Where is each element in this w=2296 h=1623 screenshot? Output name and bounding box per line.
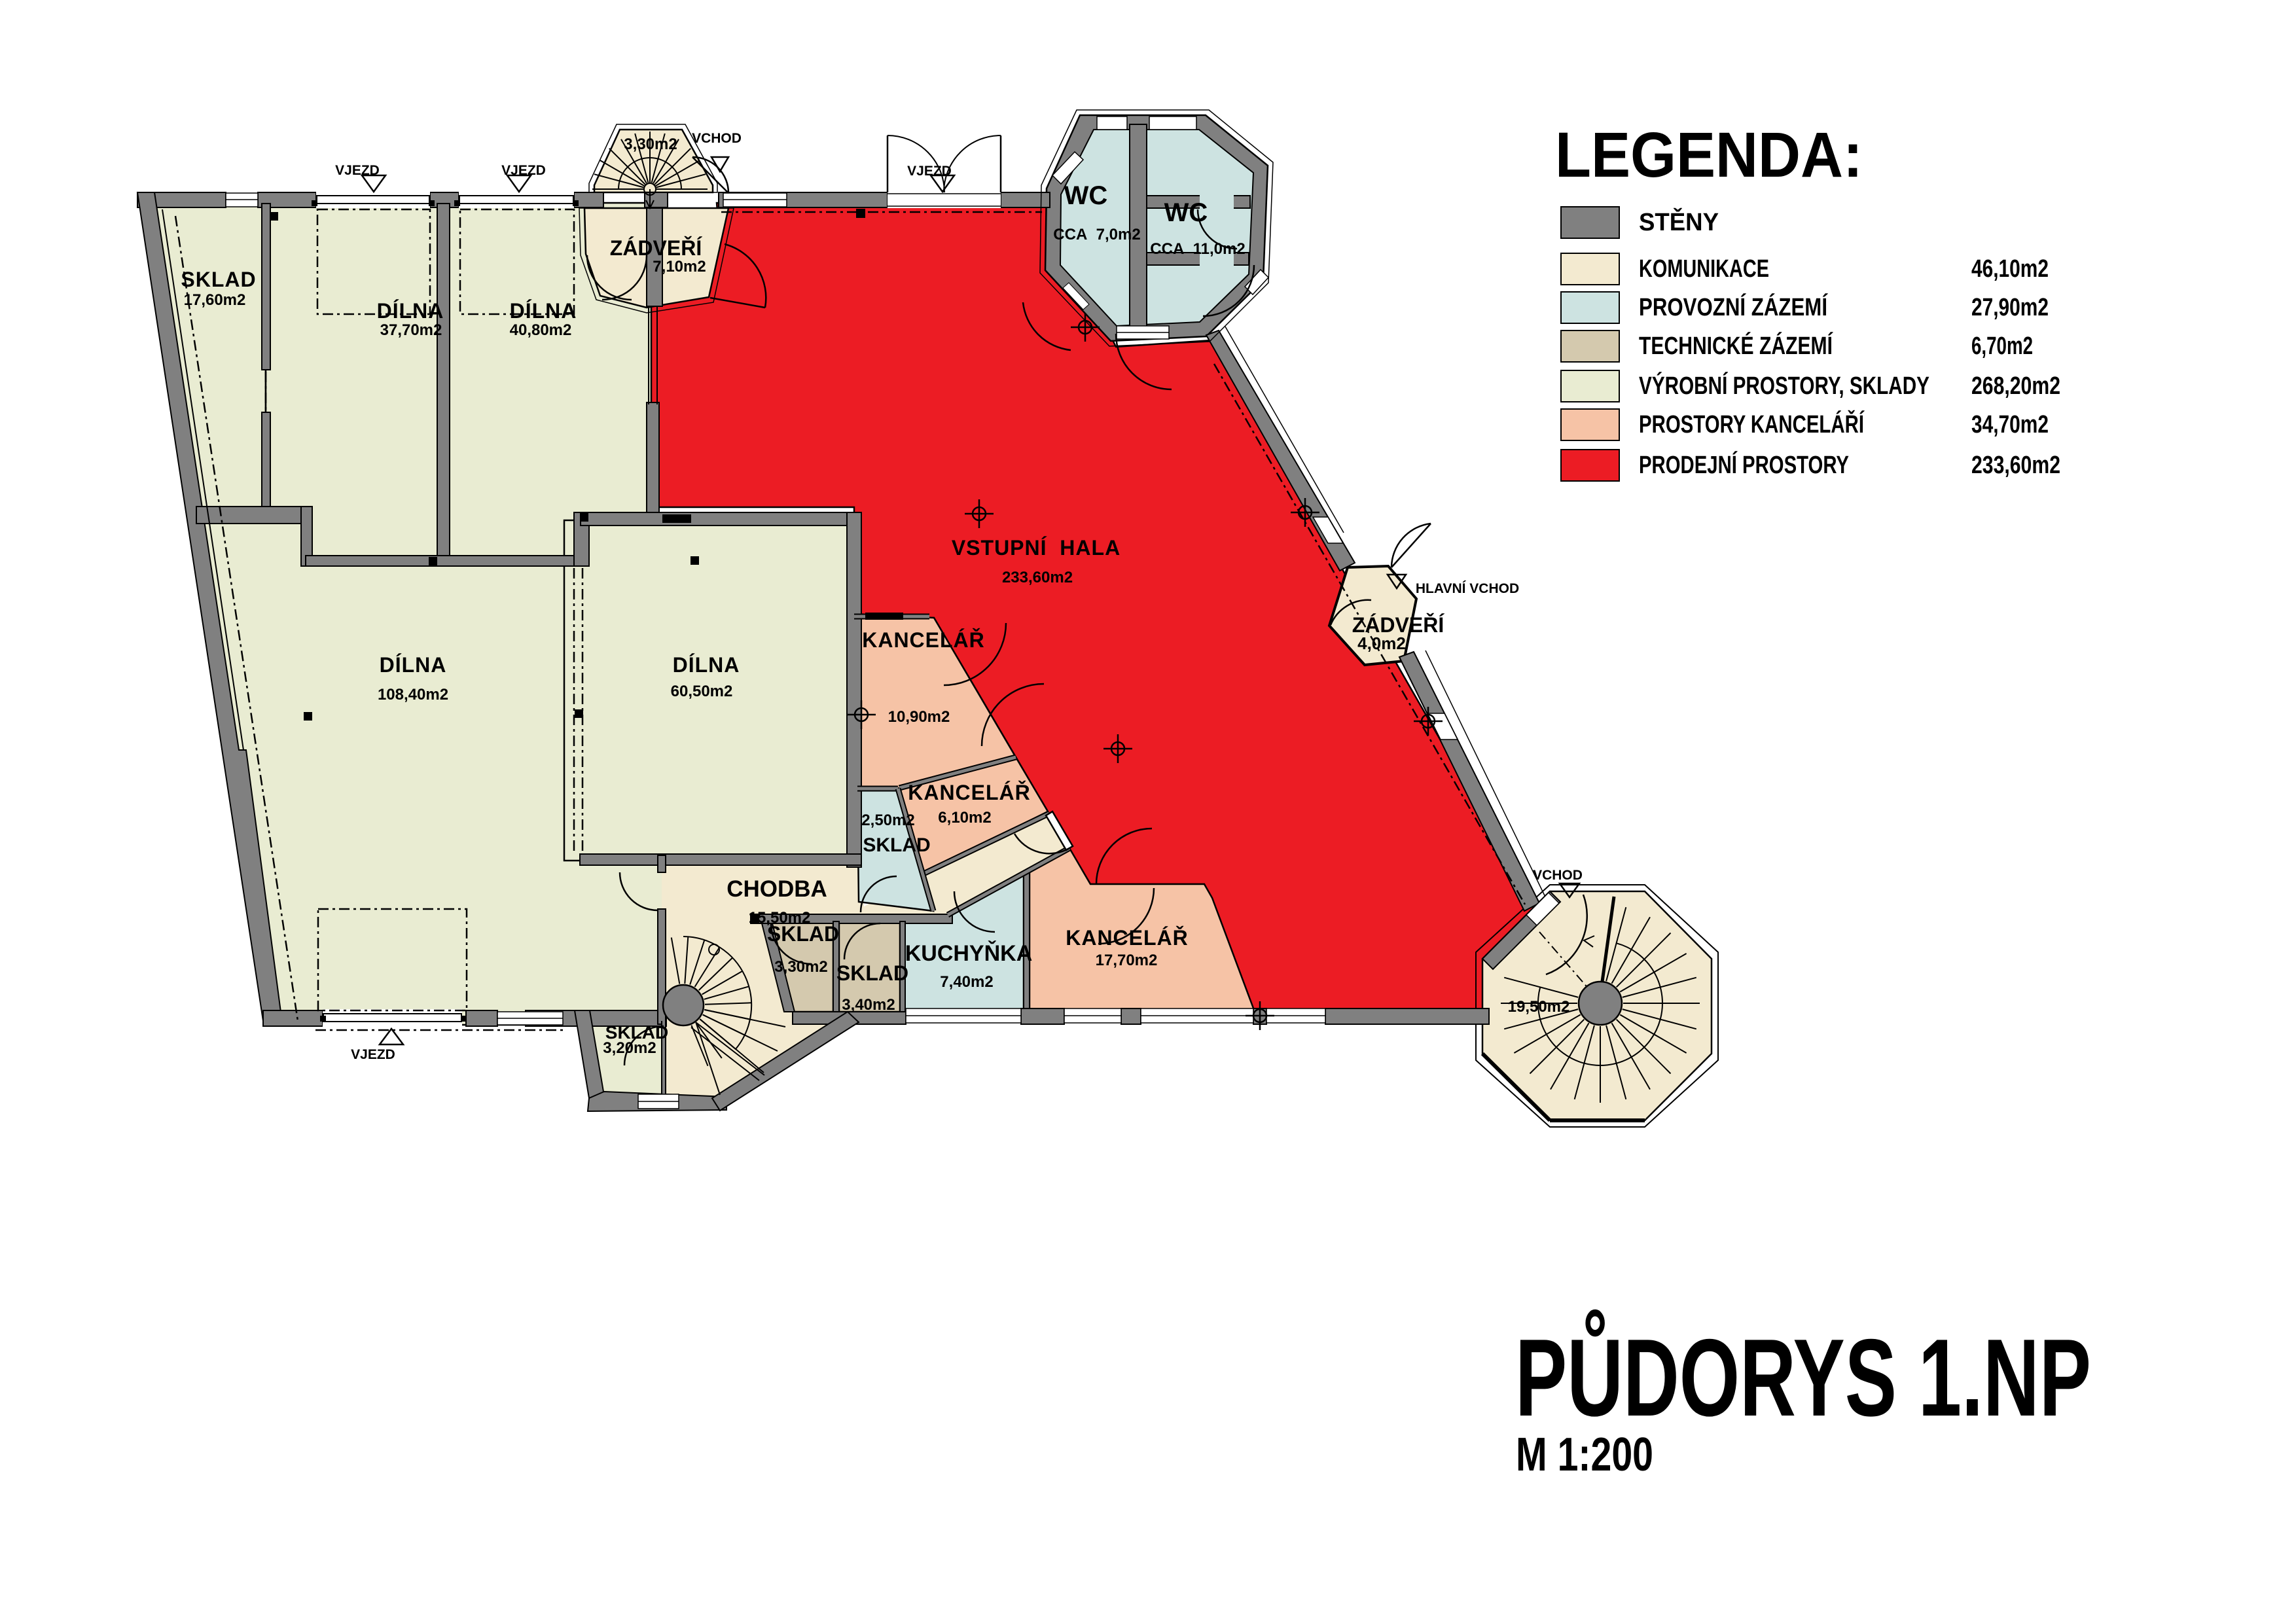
svg-text:2,50m2: 2,50m2 (861, 811, 914, 829)
svg-text:PŮDORYS 1.NP: PŮDORYS 1.NP (1515, 1309, 2091, 1439)
svg-text:233,60m2: 233,60m2 (1002, 569, 1073, 586)
svg-text:VJEZD: VJEZD (335, 163, 380, 178)
svg-text:17,60m2: 17,60m2 (184, 291, 246, 309)
svg-text:DÍLNA: DÍLNA (380, 653, 447, 677)
svg-text:VÝROBNÍ PROSTORY, SKLADY: VÝROBNÍ PROSTORY, SKLADY (1639, 371, 1929, 400)
svg-text:10,90m2: 10,90m2 (888, 708, 950, 726)
svg-text:KOMUNIKACE: KOMUNIKACE (1639, 255, 1769, 283)
svg-text:DÍLNA: DÍLNA (673, 653, 740, 677)
svg-text:KANCELÁŘ: KANCELÁŘ (1066, 926, 1189, 950)
svg-text:VCHOD: VCHOD (1533, 868, 1583, 883)
svg-text:CHODBA: CHODBA (726, 876, 827, 902)
svg-text:7,40m2: 7,40m2 (940, 973, 993, 991)
svg-text:PRODEJNÍ PROSTORY: PRODEJNÍ PROSTORY (1639, 450, 1849, 479)
svg-text:CCA 7,0m2: CCA 7,0m2 (1053, 226, 1140, 243)
svg-text:4,0m2: 4,0m2 (1357, 633, 1406, 653)
svg-text:VJEZD: VJEZD (501, 163, 546, 178)
svg-text:3,40m2: 3,40m2 (842, 996, 895, 1014)
svg-text:VSTUPNÍ HALA: VSTUPNÍ HALA (952, 536, 1121, 560)
svg-text:17,70m2: 17,70m2 (1096, 952, 1158, 969)
svg-text:6,70m2: 6,70m2 (1971, 332, 2033, 360)
svg-text:HLAVNÍ VCHOD: HLAVNÍ VCHOD (1416, 581, 1519, 596)
svg-text:46,10m2: 46,10m2 (1971, 255, 2049, 283)
svg-text:VJEZD: VJEZD (351, 1047, 395, 1062)
svg-text:3,20m2: 3,20m2 (603, 1039, 656, 1057)
svg-text:SKLAD: SKLAD (181, 268, 256, 291)
svg-text:WC: WC (1164, 198, 1208, 227)
svg-text:6,10m2: 6,10m2 (938, 809, 991, 827)
svg-text:LEGENDA:: LEGENDA: (1555, 119, 1863, 190)
svg-text:KANCELÁŘ: KANCELÁŘ (862, 628, 985, 652)
svg-text:DÍLNA: DÍLNA (510, 299, 577, 323)
svg-text:SKLAD: SKLAD (863, 834, 930, 856)
svg-text:268,20m2: 268,20m2 (1971, 372, 2060, 400)
svg-text:PROVOZNÍ ZÁZEMÍ: PROVOZNÍ ZÁZEMÍ (1639, 293, 1828, 321)
svg-text:M 1:200: M 1:200 (1516, 1429, 1653, 1481)
svg-text:108,40m2: 108,40m2 (378, 686, 448, 704)
svg-text:27,90m2: 27,90m2 (1971, 294, 2049, 321)
svg-text:DÍLNA: DÍLNA (377, 299, 444, 323)
svg-text:34,70m2: 34,70m2 (1971, 411, 2049, 438)
svg-text:SKLAD: SKLAD (836, 961, 908, 985)
svg-text:3,30m2: 3,30m2 (624, 135, 677, 153)
svg-text:PROSTORY KANCELÁŘÍ: PROSTORY KANCELÁŘÍ (1639, 410, 1865, 438)
svg-text:WC: WC (1064, 181, 1108, 210)
svg-text:37,70m2: 37,70m2 (380, 321, 442, 339)
svg-text:40,80m2: 40,80m2 (510, 321, 572, 339)
svg-text:7,10m2: 7,10m2 (653, 258, 706, 276)
svg-text:KUCHYŇKA: KUCHYŇKA (905, 941, 1033, 966)
svg-text:VCHOD: VCHOD (692, 131, 742, 146)
svg-text:SKLAD: SKLAD (767, 922, 839, 946)
svg-text:ZÁDVEŘÍ: ZÁDVEŘÍ (610, 236, 703, 260)
svg-text:CCA 11,0m2: CCA 11,0m2 (1150, 240, 1245, 258)
svg-text:233,60m2: 233,60m2 (1971, 452, 2060, 479)
svg-text:STĚNY: STĚNY (1639, 207, 1719, 236)
svg-text:KANCELÁŘ: KANCELÁŘ (908, 781, 1031, 804)
svg-text:19,50m2: 19,50m2 (1508, 998, 1570, 1016)
svg-text:TECHNICKÉ ZÁZEMÍ: TECHNICKÉ ZÁZEMÍ (1639, 331, 1833, 360)
svg-text:VJEZD: VJEZD (907, 164, 952, 179)
svg-text:3,30m2: 3,30m2 (774, 958, 827, 976)
svg-text:60,50m2: 60,50m2 (671, 683, 733, 700)
